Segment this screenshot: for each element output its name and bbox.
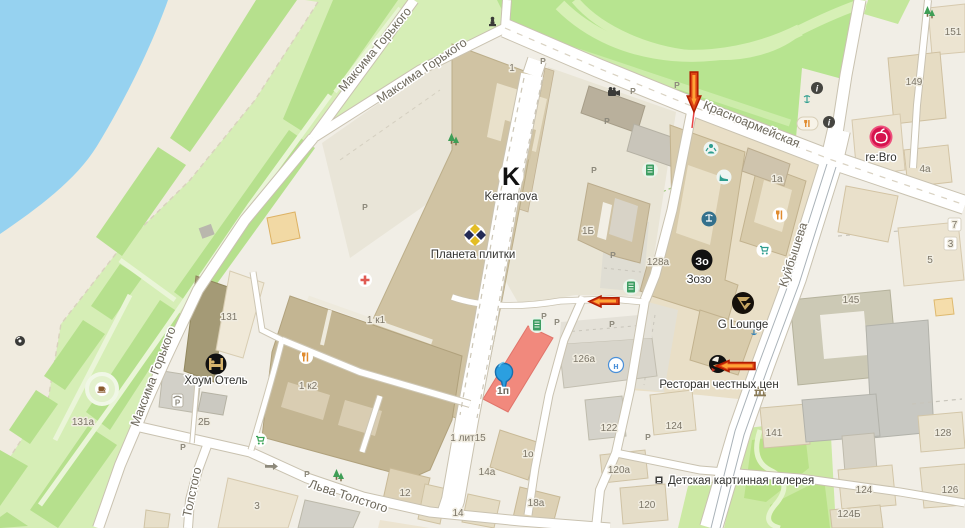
svg-text:141: 141	[766, 428, 783, 439]
svg-text:131а: 131а	[72, 417, 95, 428]
svg-text:14а: 14а	[479, 467, 496, 478]
svg-text:128: 128	[935, 428, 952, 439]
svg-text:P: P	[630, 86, 636, 96]
svg-text:Ресторан честных цен: Ресторан честных цен	[659, 379, 778, 391]
svg-text:131: 131	[221, 312, 238, 323]
svg-text:1 лит15: 1 лит15	[450, 433, 486, 444]
svg-text:7: 7	[952, 220, 958, 231]
svg-text:1Б: 1Б	[582, 226, 595, 237]
svg-text:1а: 1а	[771, 174, 783, 185]
svg-text:120: 120	[639, 500, 656, 511]
svg-text:1о: 1о	[522, 449, 534, 460]
svg-text:P: P	[180, 442, 186, 452]
svg-text:3: 3	[254, 501, 260, 512]
svg-text:151: 151	[945, 27, 962, 38]
svg-text:1п: 1п	[497, 385, 509, 397]
svg-text:н: н	[613, 361, 618, 371]
svg-text:126: 126	[942, 485, 959, 496]
svg-text:5: 5	[927, 255, 933, 266]
svg-text:1 к2: 1 к2	[299, 381, 318, 392]
svg-text:122: 122	[601, 423, 618, 434]
svg-text:P: P	[304, 469, 310, 479]
svg-text:Планета плитки: Планета плитки	[431, 249, 516, 261]
svg-text:re:Bro: re:Bro	[865, 152, 896, 164]
svg-text:Детская картинная галерея: Детская картинная галерея	[668, 475, 814, 487]
svg-text:Хоум Отель: Хоум Отель	[184, 375, 247, 387]
svg-text:124Б: 124Б	[837, 509, 861, 520]
svg-text:Kerranova: Kerranova	[484, 191, 538, 203]
svg-text:3: 3	[948, 239, 954, 250]
svg-text:K: K	[502, 163, 520, 191]
svg-text:P: P	[645, 432, 651, 442]
svg-text:4а: 4а	[919, 164, 931, 175]
svg-text:G Lounge: G Lounge	[718, 319, 769, 331]
svg-text:18а: 18а	[528, 498, 545, 509]
svg-text:P: P	[609, 319, 615, 329]
svg-text:149: 149	[906, 77, 923, 88]
svg-text:P: P	[175, 399, 181, 408]
svg-text:126а: 126а	[573, 354, 596, 365]
svg-text:P: P	[362, 202, 368, 212]
svg-text:12: 12	[399, 488, 411, 499]
svg-text:P: P	[610, 250, 616, 260]
svg-text:P: P	[591, 165, 597, 175]
svg-text:P: P	[540, 56, 546, 66]
svg-text:1: 1	[509, 63, 515, 74]
svg-text:2Б: 2Б	[198, 417, 211, 428]
svg-text:1 к1: 1 к1	[367, 315, 386, 326]
svg-text:124: 124	[666, 421, 683, 432]
svg-text:Зозо: Зозо	[687, 274, 712, 286]
svg-text:P: P	[604, 116, 610, 126]
svg-text:P: P	[554, 317, 560, 327]
svg-text:124: 124	[856, 485, 873, 496]
svg-text:145: 145	[843, 295, 860, 306]
svg-text:120а: 120а	[608, 465, 631, 476]
svg-text:P: P	[674, 80, 680, 90]
svg-text:Зo: Зo	[695, 256, 709, 268]
svg-text:14: 14	[452, 508, 464, 519]
svg-text:128а: 128а	[647, 257, 670, 268]
